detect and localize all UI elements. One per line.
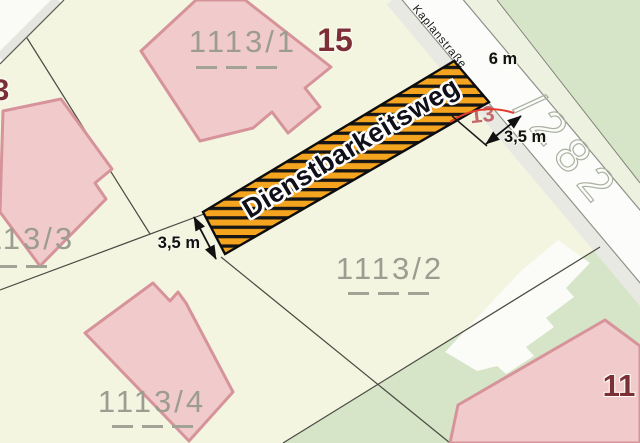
street-width-dimension: 6 m xyxy=(481,50,525,69)
easement-width-dimension-right: 3,5 m xyxy=(504,128,546,147)
cadastral-map-canvas[interactable]: 1113/1 1113/2 1113/3 1113/4 /282 15 11 3… xyxy=(0,0,640,443)
dimension-extension-line xyxy=(452,116,487,146)
map-annotation-layer xyxy=(0,0,640,443)
easement-width-dimension-left: 3,5 m xyxy=(152,234,200,253)
